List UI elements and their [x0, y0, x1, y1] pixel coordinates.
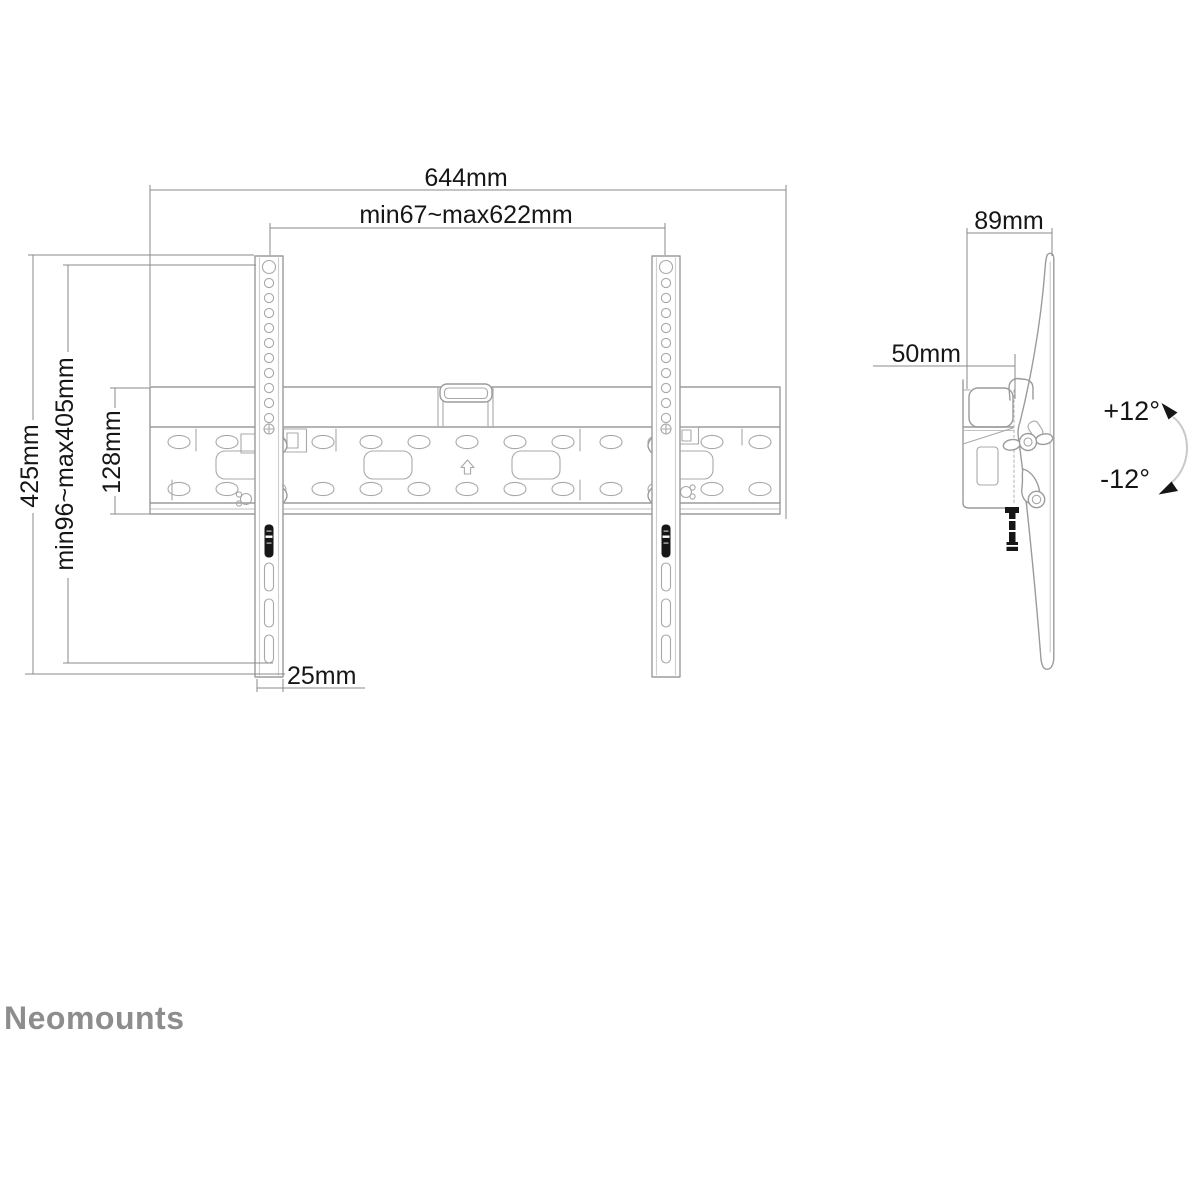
dim-depth-label: 89mm — [974, 207, 1043, 235]
dim-rail-height-label: 128mm — [98, 410, 126, 493]
dim-width-range-label: min67~max622mm — [359, 201, 572, 229]
dim-offset: 50mm — [873, 340, 1015, 399]
tilt-arrow-down-icon — [1159, 482, 1179, 495]
wing-nut — [1002, 429, 1054, 454]
technical-drawing-page: 644mm min67~max622mm 425mm min — [0, 0, 1200, 1200]
tv-panel-profile — [1018, 253, 1054, 669]
rail — [150, 384, 780, 514]
dim-strip-width-label: 25mm — [287, 662, 356, 690]
tilt-arrow-up-icon — [1162, 403, 1178, 420]
clamp-bolt — [1005, 507, 1020, 551]
vesa-strip-left — [255, 256, 287, 677]
strip-label-tab — [662, 525, 671, 558]
dim-rail-height: 128mm — [98, 388, 150, 514]
dim-width-total-label: 644mm — [424, 164, 507, 192]
tilt-angle-callout: +12° -12° — [1100, 396, 1187, 495]
tilt-down-label: -12° — [1100, 464, 1150, 494]
vesa-strip-right — [648, 256, 680, 677]
brand-logo: Neomounts — [4, 1000, 185, 1036]
tilt-mechanism — [1002, 419, 1054, 551]
strip-label-tab — [265, 525, 274, 558]
dim-width-range: min67~max622mm — [270, 201, 665, 255]
tilt-up-label: +12° — [1103, 396, 1160, 426]
dim-offset-label: 50mm — [892, 340, 961, 368]
dim-depth: 89mm — [967, 207, 1052, 389]
dim-height-total-label: 425mm — [16, 424, 44, 507]
front-view: 644mm min67~max622mm 425mm min — [16, 164, 786, 692]
wall-mount-technical-drawing: 644mm min67~max622mm 425mm min — [0, 0, 1200, 1200]
side-view: 89mm 50mm +12° -12° — [873, 207, 1187, 669]
dim-height-range-label: min96~max405mm — [51, 357, 79, 570]
